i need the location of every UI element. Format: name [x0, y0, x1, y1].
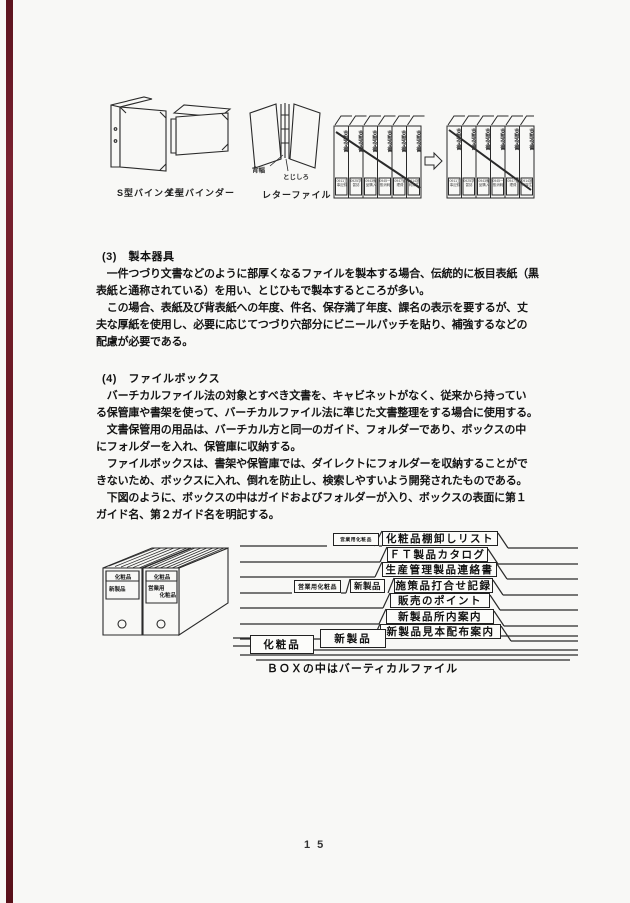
first-guide-tab: 化粧品	[250, 635, 314, 654]
second-guide-tab: 新製品	[320, 629, 386, 648]
folder-tab: 生産管理製品連絡書	[382, 562, 497, 577]
section3-line: 表紙と通称されている）を用い、とじひもで製本するところが多い。	[96, 283, 541, 300]
spine-title: 支部令書	[480, 128, 490, 174]
box2-header-label: 化粧品	[147, 573, 177, 581]
guide-tab-small: 営業用化粧品	[333, 533, 379, 546]
file-boxes-illustration	[85, 545, 235, 660]
section4-line: きないため、ボックスに入れ、倒れを防止し、検索しやすいよう開発されたものである。	[96, 473, 541, 490]
spine-tag: 0945一般消耗	[492, 179, 504, 195]
folder-tab: 販売のポイント	[390, 593, 490, 608]
box2-sub-label-line2: 化粧品	[148, 591, 176, 599]
spine-tag: 0911工事記録	[449, 179, 461, 195]
spine-tag: 0945一般消耗	[379, 179, 391, 195]
section3-line: この場合、表紙及び背表紙への年度、件名、保存満了年度、課名の表示を要するが、丈	[96, 300, 541, 317]
scanned-document-page: 支部令書 支部令書 支部令書 支部令書 支部令書 支部令書 支部令書 支部令書 …	[0, 0, 630, 903]
spine-title: 支部令書	[451, 128, 461, 174]
section3-line: 夫な厚紙を使用し、必要に応じてつづり穴部分にビニールパッチを貼り、補強するなどの	[96, 317, 541, 334]
section4-heading: (4) ファイルボックス	[102, 370, 220, 386]
spine-tag: 0943備品購入	[365, 179, 377, 195]
folder-tab: 化粧品棚卸しリスト	[382, 531, 498, 546]
spine-width-label: 背幅	[252, 164, 265, 174]
box1-header-label: 化粧品	[107, 573, 139, 581]
folder-tab: 新製品見本配布案内	[380, 624, 501, 639]
section4-line: にフォルダーを入れ、保管庫に収納する。	[96, 439, 541, 456]
spine-title: 支部令書	[509, 128, 519, 174]
spine-title: 支部令書	[396, 130, 406, 176]
spine-title: 支部令書	[524, 128, 534, 174]
spine-title: 支部令書	[411, 130, 421, 176]
spine-tag: 0911工事記録	[336, 179, 348, 195]
spine-title: 支部令書	[367, 130, 377, 176]
spine-title: 支部令書	[338, 130, 348, 176]
spine-tag: 0925学習誌	[463, 179, 475, 195]
box1-sub-label: 新製品	[109, 585, 139, 593]
section3-line: 一件つづり文書などのように部厚くなるファイルを製本する場合、伝統的に板目表紙（黒	[96, 266, 541, 283]
folder-tab: 施策品打合せ記録	[394, 578, 493, 593]
section4-line: る保管庫や書架を使って、バーチカルファイル法に準じた文書整理をする場合に使用する…	[96, 405, 541, 422]
spine-title: 支部令書	[382, 130, 392, 176]
section3-heading: (3) 製本器具	[102, 248, 174, 264]
spine-tag: 0947管理費	[394, 179, 406, 195]
section4-line: 下図のように、ボックスの中はガイドおよびフォルダーが入り、ボックスの表面に第１	[96, 490, 541, 507]
binding-margin-label: とじしろ	[283, 171, 309, 181]
section4-line: ファイルボックスは、書架や保管庫では、ダイレクトにフォルダーを収納することがで	[96, 456, 541, 473]
scan-edge-strip	[6, 0, 13, 903]
spine-title: 支部令書	[466, 128, 476, 174]
binder-e-label: E型バインダー	[168, 186, 235, 199]
spine-title: 支部令書	[353, 130, 363, 176]
spine-tag: 0943備品購入	[478, 179, 490, 195]
arrow-icon	[425, 153, 442, 169]
spine-tag: 0947管理費	[507, 179, 519, 195]
figure-caption: ＢＯＸの中はバーティカルファイル	[255, 660, 470, 676]
page-number: 15	[304, 839, 330, 851]
guide-sub-tab: 新製品	[350, 579, 385, 593]
spine-title: 支部令書	[495, 128, 505, 174]
spine-tag: 0914福利厚生	[521, 179, 533, 195]
letter-file-label: レターファイル	[262, 188, 331, 201]
folder-tab: 新製品所内案内	[386, 609, 494, 624]
folder-tab: ＦＴ製品カタログ	[387, 547, 488, 562]
section3-line: 配慮が必要である。	[96, 334, 541, 351]
guide-tab: 営業用化粧品	[294, 580, 341, 593]
section4-line: バーチカルファイル法の対象とすべき文書を、キャビネットがなく、従来から持ってい	[96, 388, 541, 405]
section4-line: ガイド名、第２ガイド名を明記する。	[96, 507, 541, 524]
section4-line: 文書保管用の用品は、バーチカル方と同一のガイド、フォルダーであり、ボックスの中	[96, 422, 541, 439]
spine-tag: 0925学習誌	[350, 179, 362, 195]
spine-tag: 0914福利厚生	[408, 179, 420, 195]
